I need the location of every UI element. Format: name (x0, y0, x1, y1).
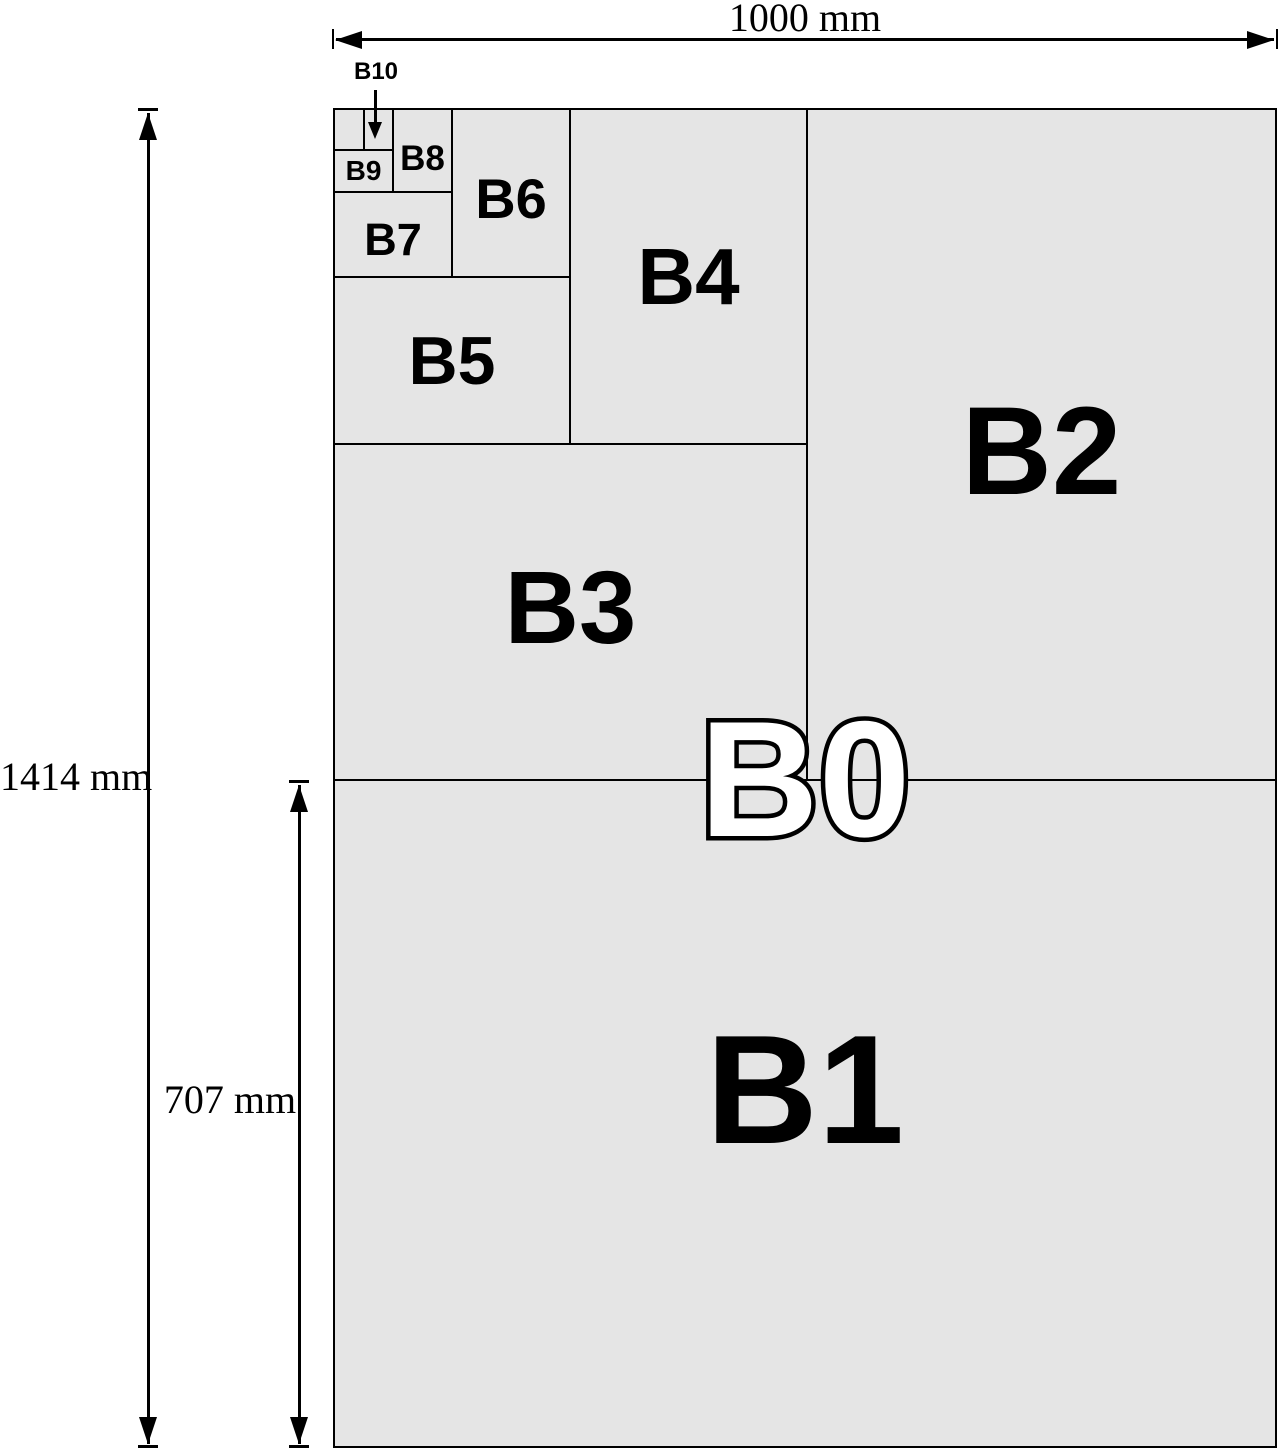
b6-size-label: B6 (475, 171, 547, 227)
b4-size-label: B4 (637, 237, 739, 317)
b10-callout-arrow-line (374, 90, 377, 124)
arrow-down-icon (368, 122, 382, 139)
height-dimension-line (147, 113, 150, 1444)
height-dimension-top-tick (138, 108, 158, 111)
b7-size-label: B7 (364, 217, 422, 262)
height-dimension-bottom-tick (138, 1445, 158, 1448)
arrow-left-icon (335, 31, 362, 49)
arrow-down-icon (139, 1417, 157, 1444)
cell-b9: B9 (335, 149, 392, 191)
b1-size-label: B1 (706, 1012, 904, 1167)
arrow-up-icon (139, 113, 157, 140)
b8-size-label: B8 (400, 141, 445, 176)
b9-size-label: B9 (346, 157, 382, 185)
half-height-dimension-label: 707 mm (158, 1078, 302, 1122)
height-dimension-label: 1414 mm (0, 755, 142, 799)
b3-size-label: B3 (505, 556, 637, 659)
width-dimension-label: 1000 mm (655, 0, 955, 40)
half-height-dimension-line (298, 785, 301, 1444)
b5-size-label: B5 (409, 327, 496, 395)
b10-size-label: B10 (340, 60, 412, 84)
b0-size-label: B0 (665, 676, 945, 882)
half-height-dimension-bottom-tick (289, 1445, 309, 1448)
arrow-up-icon (290, 785, 308, 812)
width-dimension-line (336, 38, 1274, 41)
b2-size-label: B2 (962, 389, 1122, 514)
paper-size-diagram: 1000 mm 1414 mm 707 mm B10 B1 B2 B3 B4 B… (0, 0, 1280, 1452)
cell-b8: B8 (392, 110, 451, 191)
width-dimension-right-tick (1276, 29, 1278, 49)
half-height-dimension-top-tick (289, 780, 309, 783)
cell-b5: B5 (335, 276, 569, 443)
cell-b6: B6 (451, 110, 569, 276)
b0-size-label-text: B0 (700, 687, 911, 871)
cell-b7: B7 (335, 191, 451, 276)
arrow-right-icon (1247, 31, 1274, 49)
cell-b4: B4 (569, 110, 806, 443)
arrow-down-icon (290, 1417, 308, 1444)
width-dimension-left-tick (332, 29, 334, 49)
